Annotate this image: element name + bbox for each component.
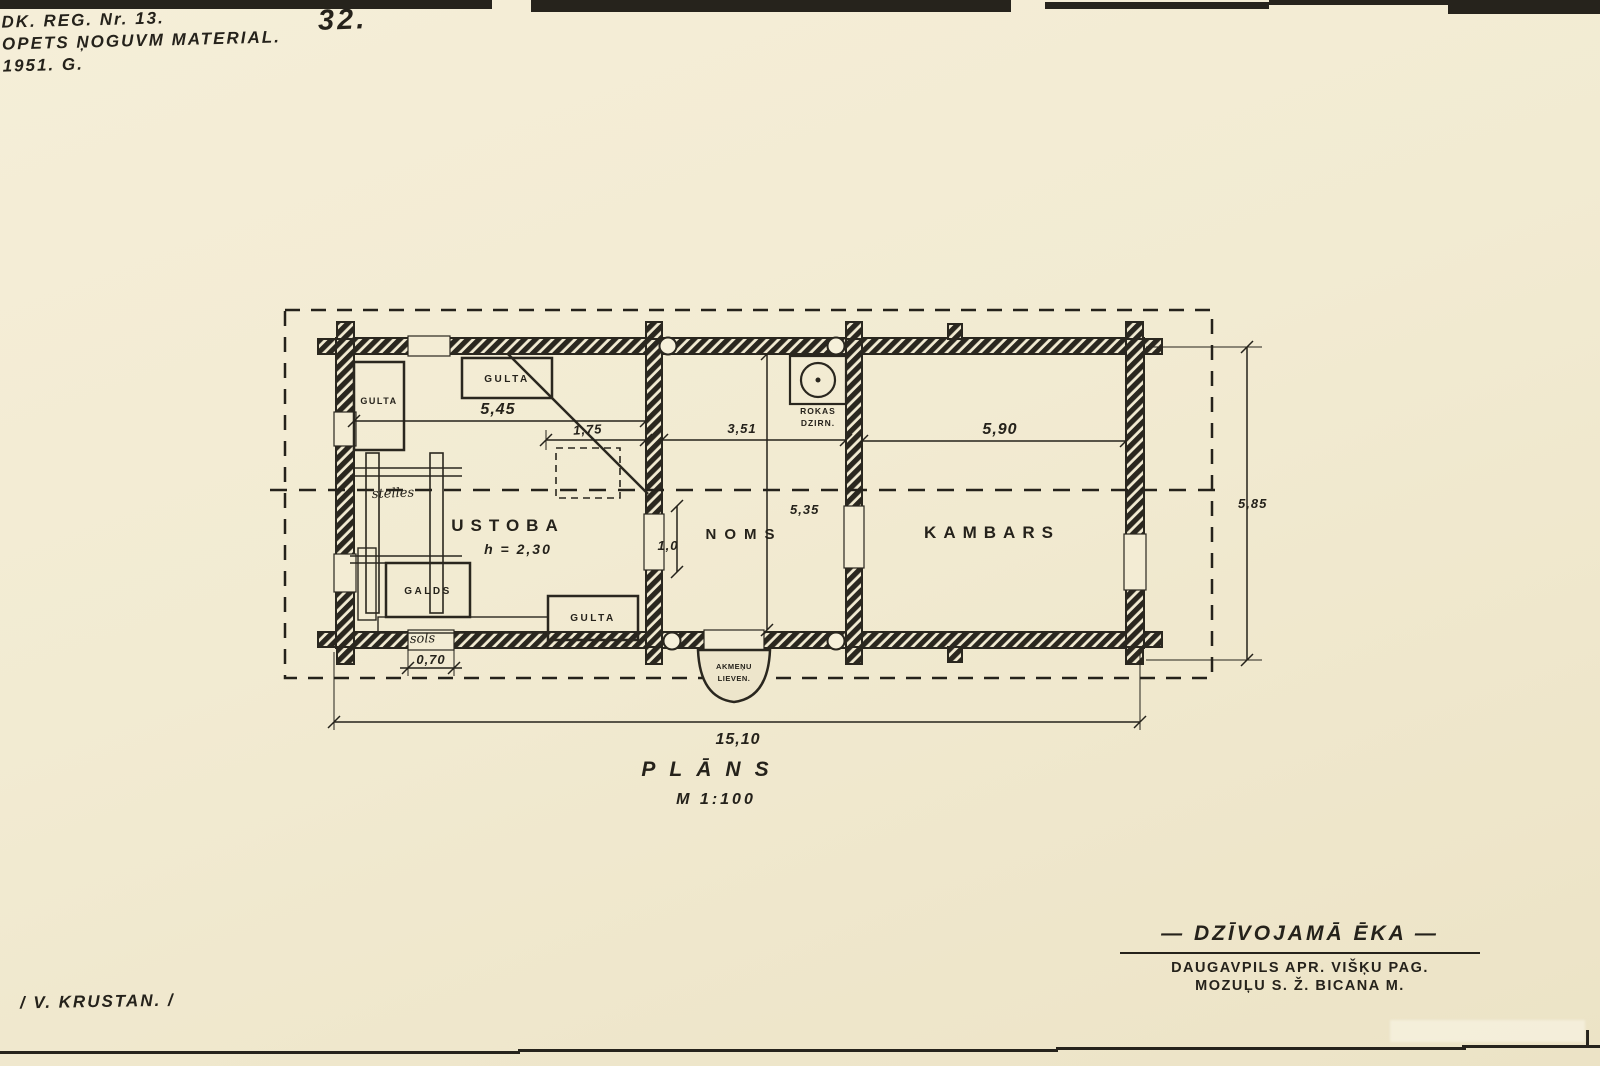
scanned-drawing-page: DK. REG. Nr. 13. OPETS ŅOGUVM MATERIAL. … [0,0,1600,1066]
log-walls [318,322,1162,664]
table-label: GALDS [404,586,452,597]
plan-caption-scale: M 1:100 [676,791,756,808]
log-end [664,633,681,650]
dim-label-inner-depth: 5,35 [790,502,819,517]
loom-label: stelles [372,486,415,502]
window-left-1 [334,412,356,446]
log-joint [337,647,354,664]
log-joint [646,647,662,664]
log-end [660,338,677,355]
porch-label-2: LIEVEN. [718,674,751,683]
hand-mill-label-2: DZIRN. [801,418,835,428]
bed-label-top: GULTA [484,374,529,385]
window-right [1124,534,1146,590]
log-end [828,338,845,355]
dim-label-total-width: 15,10 [715,731,760,748]
dim-label-ustoba: 5,45 [480,401,515,418]
log-joint [846,647,862,664]
eaves-dashed-outline [285,310,1212,678]
entrance-door-opening [704,630,764,650]
title-block: — DZĪVOJAMĀ ĒKA — DAUGAVPILS APR. VIŠĶU … [1120,922,1480,994]
door-partition-2 [844,506,864,568]
partition-noms-kambars [846,338,862,648]
bench-icon [378,617,548,633]
log-joint [646,322,662,339]
porch-label-1: AKMEŅU [716,662,752,671]
log-end-circles [660,338,845,650]
log-joint [1126,322,1143,339]
room-label-kambars: KAMBARS [924,523,1060,542]
log-joint [1144,632,1162,647]
dim-label-oven: 1,75 [573,421,603,438]
log-end [828,633,845,650]
hand-mill-icon [790,356,846,404]
surveyor-signature: / V. KRUSTAN. / [20,991,175,1014]
wall-top [336,338,1144,354]
dim-label-window: 0,70 [416,652,445,667]
dim-label-kambars: 5,90 [982,421,1017,438]
dimension-lines [328,341,1262,730]
room-label-ustoba-height: h = 2,30 [484,541,552,557]
wall-right [1126,338,1144,648]
bed-label-bottom: GULTA [570,613,615,624]
title-block-address-2: MOZUĻU S. Ž. BICANA M. [1120,978,1480,994]
hand-mill-label-1: ROKAS [800,406,836,416]
title-block-title: — DZĪVOJAMĀ ĒKA — [1120,922,1480,954]
title-block-address-1: DAUGAVPILS APR. VIŠĶU PAG. [1120,960,1480,976]
room-label-noms: NOMS [706,526,783,543]
bed-icon-left [354,362,404,450]
log-joint [846,322,862,339]
room-label-ustoba: USTOBA [451,516,564,535]
log-joint [318,339,336,354]
dim-label-total-depth: 5,85 [1238,496,1267,511]
floor-plan: AKMEŅU LIEVEN. [0,0,1600,1066]
log-joint [337,322,354,339]
wall-openings [334,336,1146,650]
dim-label-noms: 3,51 [727,421,756,436]
bed-label-left: GULTA [360,396,397,406]
bench-icon-side [358,548,376,620]
wall-left [336,338,354,648]
log-joint [318,632,336,647]
bench-label: sols [410,631,436,647]
log-joint [948,324,962,339]
plan-caption-title: PLĀNS [641,758,782,781]
dim-label-door: 1,0 [657,538,678,553]
window-left-2 [334,554,356,592]
porch-icon: AKMEŅU LIEVEN. [698,650,770,702]
log-joint [948,647,962,662]
window-top [408,336,450,356]
